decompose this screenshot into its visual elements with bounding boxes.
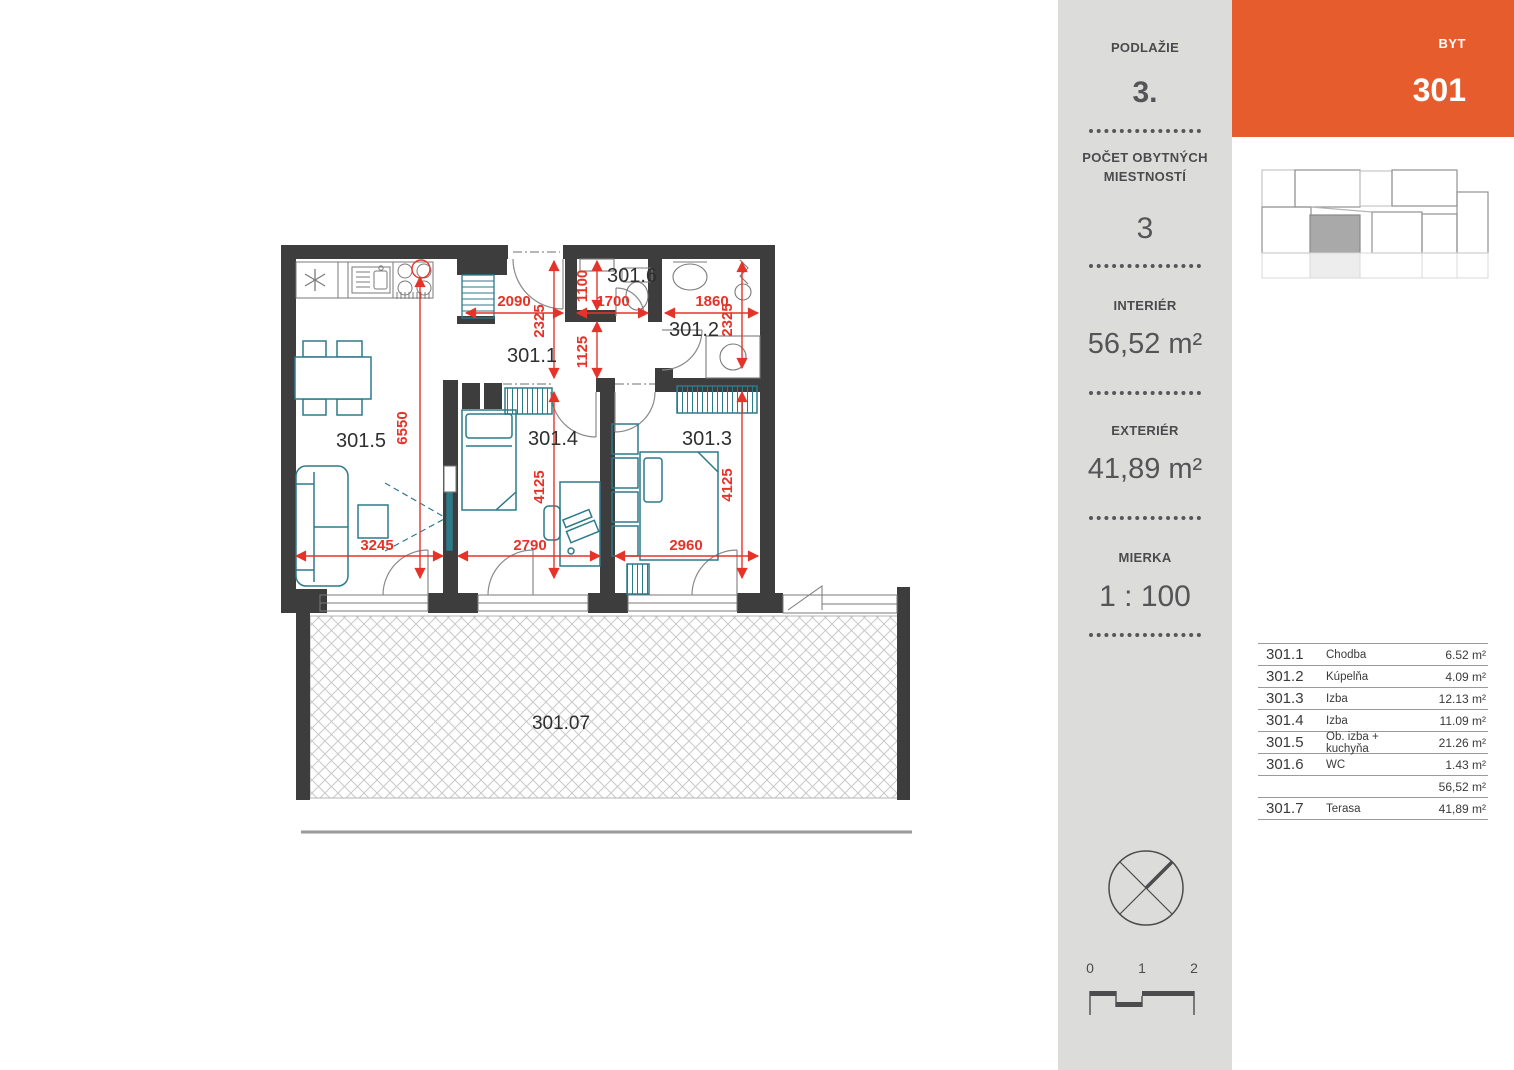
room-name-cell: Chodba — [1326, 649, 1424, 661]
fridge-icon — [305, 269, 325, 291]
dotted-divider — [1089, 129, 1201, 133]
unit-header-label: BYT — [1439, 36, 1467, 51]
casement-window-symbol — [788, 586, 822, 610]
wardrobe-room3 — [677, 386, 757, 413]
room-number-cell: 301.6 — [1258, 756, 1326, 773]
rooms-label-line1: POČET OBYTNÝCH — [1058, 148, 1232, 167]
towel-rail-icon — [735, 260, 751, 300]
exterier-value: 41,89 m² — [1058, 453, 1232, 486]
table-row: 301.4 Izba 11.09 m² — [1258, 709, 1488, 731]
scale-tick-1: 1 — [1138, 960, 1146, 976]
room-number-cell: 301.3 — [1258, 690, 1326, 707]
washing-machine-icon — [706, 336, 760, 378]
highlighted-unit — [1310, 215, 1360, 253]
room3-door — [615, 392, 655, 432]
interier-label: INTERIÉR — [1058, 296, 1232, 315]
table-row: 301.3 Izba 12.13 m² — [1258, 687, 1488, 709]
room-number-cell: 301.2 — [1258, 668, 1326, 685]
dotted-divider — [1089, 391, 1201, 395]
dim-bath-h: 2325 — [719, 303, 736, 336]
north-compass-icon — [1106, 848, 1186, 928]
dim-hall-s-h: 1125 — [574, 336, 591, 369]
dim-r3-h: 4125 — [719, 468, 736, 501]
dim-r4-h: 4125 — [531, 470, 548, 503]
room-name-cell: Izba — [1326, 715, 1424, 727]
room-name-cell: WC — [1326, 759, 1424, 771]
room-label-bath: 301.2 — [669, 319, 719, 341]
dim-living-w: 3245 — [360, 537, 393, 554]
table-row: 301.7 Terasa 41,89 m² — [1258, 797, 1488, 820]
room-label-room3: 301.3 — [682, 428, 732, 450]
table-row: 301.1 Chodba 6.52 m² — [1258, 643, 1488, 665]
sofa — [296, 466, 348, 586]
room-area-cell: 11.09 m² — [1424, 714, 1488, 728]
room-area-cell: 6.52 m² — [1424, 648, 1488, 662]
floor-plan-sheet: 3245 2790 2960 2090 1700 1860 6550 2325 … — [0, 0, 1514, 1070]
dim-r4-w: 2790 — [513, 537, 546, 554]
room-number-cell: 301.1 — [1258, 646, 1326, 663]
room-label-room4: 301.4 — [528, 428, 578, 450]
chair — [337, 399, 362, 415]
washbasin-icon — [673, 262, 707, 290]
room-area-cell: 4.09 m² — [1424, 670, 1488, 684]
room-label-living: 301.5 — [336, 430, 386, 452]
desk — [544, 482, 600, 566]
room-label-terrace: 301.07 — [532, 713, 590, 734]
podlazie-label: PODLAŽIE — [1058, 38, 1232, 57]
room-area-cell: 12.13 m² — [1424, 692, 1488, 706]
mierka-label: MIERKA — [1058, 548, 1232, 567]
rooms-label-line2: MIESTNOSTÍ — [1058, 167, 1232, 186]
room-name-cell: Ob. izba + kuchyňa — [1326, 731, 1424, 755]
scale-bar: 0 1 2 — [1080, 945, 1210, 1020]
room-area-cell: 41,89 m² — [1424, 802, 1488, 816]
wardrobe-room4 — [505, 388, 552, 414]
unit-header: BYT 301 — [1232, 0, 1514, 137]
room-area-cell: 21.26 m² — [1424, 736, 1488, 750]
room-area-cell: 56,52 m² — [1424, 780, 1488, 794]
table-row: 301.2 Kúpelňa 4.09 m² — [1258, 665, 1488, 687]
table-row: 301.5 Ob. izba + kuchyňa 21.26 m² — [1258, 731, 1488, 753]
radiator — [627, 564, 649, 594]
dotted-divider — [1089, 264, 1201, 268]
room-number-cell: 301.5 — [1258, 734, 1326, 751]
dotted-divider — [1089, 516, 1201, 520]
interier-value: 56,52 m² — [1058, 328, 1232, 361]
table-row: 301.6 WC 1.43 m² — [1258, 753, 1488, 775]
terrace-area — [296, 587, 912, 832]
unit-number: 301 — [1413, 72, 1466, 109]
exterier-label: EXTERIÉR — [1058, 421, 1232, 440]
dim-r3-w: 2960 — [669, 537, 702, 554]
room-area-cell: 1.43 m² — [1424, 758, 1488, 772]
chair — [303, 341, 326, 357]
room-number-cell: 301.7 — [1258, 800, 1326, 817]
sink-icon — [352, 266, 390, 293]
room-legend-table: 301.1 Chodba 6.52 m² 301.2 Kúpelňa 4.09 … — [1258, 643, 1488, 820]
dim-wc-w: 1700 — [596, 293, 629, 310]
table-row-total: 56,52 m² — [1258, 775, 1488, 797]
tv-view-lines — [385, 483, 446, 551]
rooms-value: 3 — [1058, 212, 1232, 246]
scale-tick-2: 2 — [1190, 960, 1198, 976]
room-number-cell: 301.4 — [1258, 712, 1326, 729]
chair — [303, 399, 326, 415]
dim-hall-n-h: 2325 — [531, 304, 548, 337]
dim-hall-w: 2090 — [497, 293, 530, 310]
floor-plan-drawing: 3245 2790 2960 2090 1700 1860 6550 2325 … — [0, 0, 1058, 1070]
room-name-cell: Izba — [1326, 693, 1424, 705]
balcony-door-room3 — [692, 550, 737, 595]
desk-chair — [544, 506, 560, 540]
balcony-door-living — [383, 550, 428, 595]
dim-living-h: 6550 — [394, 411, 411, 444]
dotted-divider — [1089, 633, 1201, 637]
niche — [444, 466, 456, 492]
tv — [447, 492, 452, 550]
bed-single — [462, 410, 516, 510]
hall-shelf — [457, 259, 507, 324]
dining-table — [295, 357, 371, 399]
mierka-value: 1 : 100 — [1058, 580, 1232, 614]
room-label-wc: 301.6 — [607, 265, 657, 287]
hob-icon — [397, 264, 431, 299]
room-name-cell: Kúpelňa — [1326, 671, 1424, 683]
coffee-table — [358, 505, 388, 538]
balcony-door-room4 — [488, 550, 533, 595]
podlazie-value: 3. — [1058, 76, 1232, 110]
dim-wc-h: 1100 — [574, 270, 591, 303]
room-label-hall: 301.1 — [507, 345, 557, 367]
room-name-cell: Terasa — [1326, 803, 1424, 815]
chair — [337, 341, 362, 357]
building-locator-map — [1252, 162, 1496, 282]
scale-tick-0: 0 — [1086, 960, 1094, 976]
